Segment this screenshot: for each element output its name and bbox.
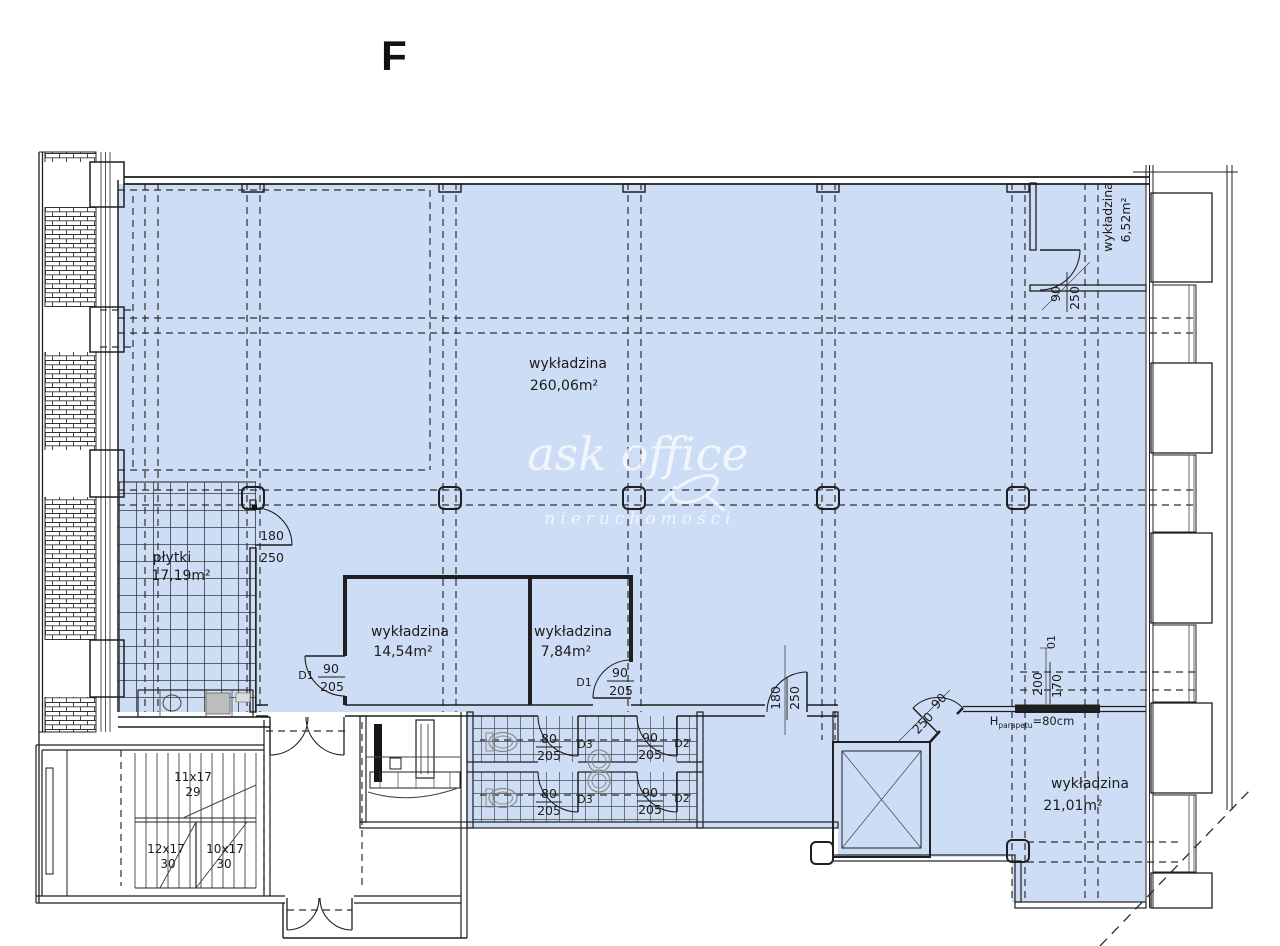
room-right-area: 21,01m² xyxy=(1043,798,1102,814)
door-d3a-tag: D3 xyxy=(577,738,592,751)
room-main-area: 260,06m² xyxy=(530,378,598,394)
section-letter: F xyxy=(381,32,407,79)
room-a-area: 14,54m² xyxy=(373,644,432,660)
floor-corridor xyxy=(703,712,838,828)
door-top-right-height: 250 xyxy=(1067,286,1082,310)
door-d2a-tag: D2 xyxy=(674,737,689,750)
stairs-top-label: 29 xyxy=(185,785,200,799)
low-sill-wall xyxy=(1015,705,1100,714)
door-d3a-height: 205 xyxy=(537,748,561,763)
room-a-name: wykładzina xyxy=(371,624,449,640)
door-d3a-width: 80 xyxy=(541,731,557,746)
door-d2a-width: 90 xyxy=(642,730,658,745)
facade-windows xyxy=(1153,285,1196,872)
stair-direction-lines xyxy=(160,785,256,888)
right-wall xyxy=(1133,165,1238,908)
door-vestibule-bottom xyxy=(287,898,352,930)
door-d1b-tag: D1 xyxy=(576,676,591,689)
watermark-brand: ask office xyxy=(527,427,749,481)
door-d1b-height: 205 xyxy=(609,683,633,698)
door-d2a-height: 205 xyxy=(638,747,662,762)
room-right-name: wykładzina xyxy=(1051,776,1129,792)
opening-tag: 01 xyxy=(1045,635,1058,649)
opening-height: 170 xyxy=(1049,674,1064,698)
door-d1b-width: 90 xyxy=(612,665,628,680)
door-plytki-height: 250 xyxy=(260,550,284,565)
watermark: ask office nieruchomości xyxy=(527,427,749,529)
door-plytki-width: 180 xyxy=(260,528,284,543)
left-wall xyxy=(39,152,124,903)
tiled-floor-plytki xyxy=(118,482,256,712)
room-plytki-name: płytki xyxy=(153,550,192,566)
room-b-name: wykładzina xyxy=(534,624,612,640)
facade-outer-line xyxy=(1227,165,1232,810)
stairs-top-treads: 11x17 xyxy=(174,770,212,784)
door-d3b-width: 80 xyxy=(541,786,557,801)
facade-pillars xyxy=(1151,193,1212,908)
floor-plan: ask office nieruchomości F wykładzina 26… xyxy=(0,0,1280,946)
door-d1a-tag: D1 xyxy=(298,669,313,682)
opening-width: 200 xyxy=(1030,672,1045,696)
door-d1a-height: 205 xyxy=(320,679,344,694)
door-d3b-tag: D3 xyxy=(577,793,592,806)
watermark-sub: nieruchomości xyxy=(544,509,735,529)
technical-equipment xyxy=(366,720,460,798)
room-top-right-area: 6,52m² xyxy=(1118,197,1133,242)
door-vestibule-top xyxy=(270,717,344,755)
door-d1a-width: 90 xyxy=(323,661,339,676)
stairs-left-treads: 12x17 xyxy=(147,842,185,856)
stairs-right-treads: 10x17 xyxy=(206,842,244,856)
stairs-left-label: 30 xyxy=(160,857,175,871)
stairs-right-label: 30 xyxy=(216,857,231,871)
door-top-right-width: 90 xyxy=(1048,286,1063,302)
floor-shaft-zone xyxy=(838,712,1012,857)
door-d2b-width: 90 xyxy=(642,785,658,800)
door-d2b-height: 205 xyxy=(638,802,662,817)
room-plytki-area: 17,19m² xyxy=(151,568,210,584)
door-corridor-height: 250 xyxy=(787,686,802,710)
door-d3b-height: 205 xyxy=(537,803,561,818)
shaft-door xyxy=(46,768,53,874)
room-top-right-name: wykładzina xyxy=(1100,182,1115,252)
room-main-name: wykładzina xyxy=(529,356,607,372)
door-d2b-tag: D2 xyxy=(674,792,689,805)
room-b-area: 7,84m² xyxy=(541,644,591,660)
door-corridor-width: 180 xyxy=(768,686,783,710)
